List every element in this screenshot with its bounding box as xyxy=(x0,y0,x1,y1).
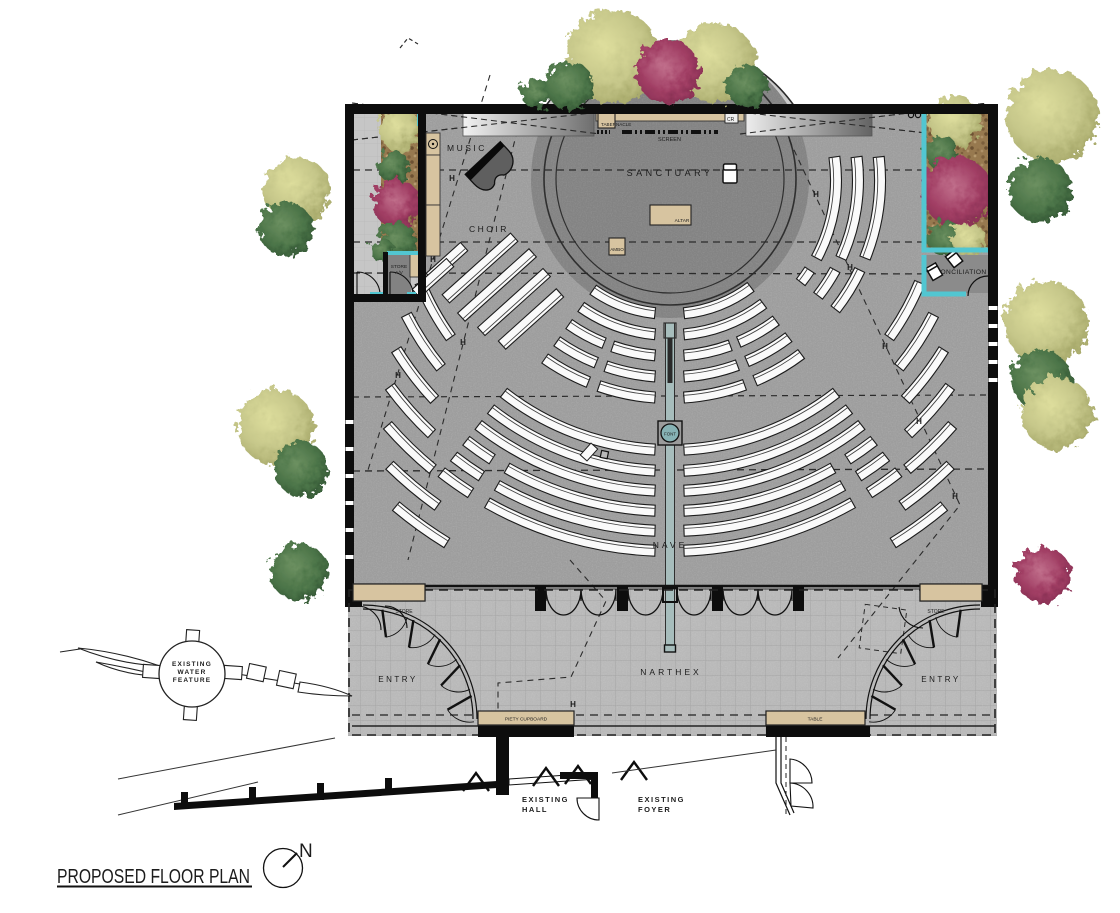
svg-text:N: N xyxy=(299,841,313,862)
svg-text:H: H xyxy=(460,338,466,347)
svg-text:STORE: STORE xyxy=(391,264,407,270)
svg-text:ENTRY: ENTRY xyxy=(921,675,960,684)
svg-text:PROPOSED FLOOR PLAN: PROPOSED FLOOR PLAN xyxy=(57,866,250,888)
svg-text:H: H xyxy=(952,492,958,501)
svg-text:ENTRY: ENTRY xyxy=(378,675,417,684)
svg-text:EXISTING: EXISTING xyxy=(638,795,685,804)
svg-text:WATER: WATER xyxy=(178,669,207,676)
svg-text:H: H xyxy=(570,700,576,709)
svg-text:H: H xyxy=(882,342,888,351)
svg-text:NAVE: NAVE xyxy=(653,540,688,550)
svg-text:CR: CR xyxy=(727,117,735,123)
svg-text:H: H xyxy=(916,417,922,426)
svg-text:ALTAR: ALTAR xyxy=(675,218,690,224)
svg-text:SANCTUARY: SANCTUARY xyxy=(627,168,714,178)
svg-text:SCREEN: SCREEN xyxy=(658,137,681,143)
svg-text:H: H xyxy=(813,190,819,199)
svg-text:H: H xyxy=(847,263,853,272)
svg-text:MUSIC: MUSIC xyxy=(447,143,487,153)
svg-text:FEATURE: FEATURE xyxy=(173,677,212,684)
svg-text:TABLE: TABLE xyxy=(808,717,823,723)
svg-text:FOYER: FOYER xyxy=(638,805,671,814)
svg-text:H: H xyxy=(395,371,401,380)
svg-text:H: H xyxy=(449,174,455,183)
svg-text:NARTHEX: NARTHEX xyxy=(640,667,701,677)
svg-text:EXISTING: EXISTING xyxy=(522,795,569,804)
svg-text:PIETY CUPBOARD: PIETY CUPBOARD xyxy=(505,717,548,723)
svg-text:FONT: FONT xyxy=(664,432,676,437)
svg-text:TABERNACLE: TABERNACLE xyxy=(601,122,631,127)
svg-text:CHOIR: CHOIR xyxy=(469,224,509,234)
svg-text:AMBO: AMBO xyxy=(610,247,624,252)
svg-text:HALL: HALL xyxy=(522,805,548,814)
svg-text:EXISTING: EXISTING xyxy=(172,661,212,668)
